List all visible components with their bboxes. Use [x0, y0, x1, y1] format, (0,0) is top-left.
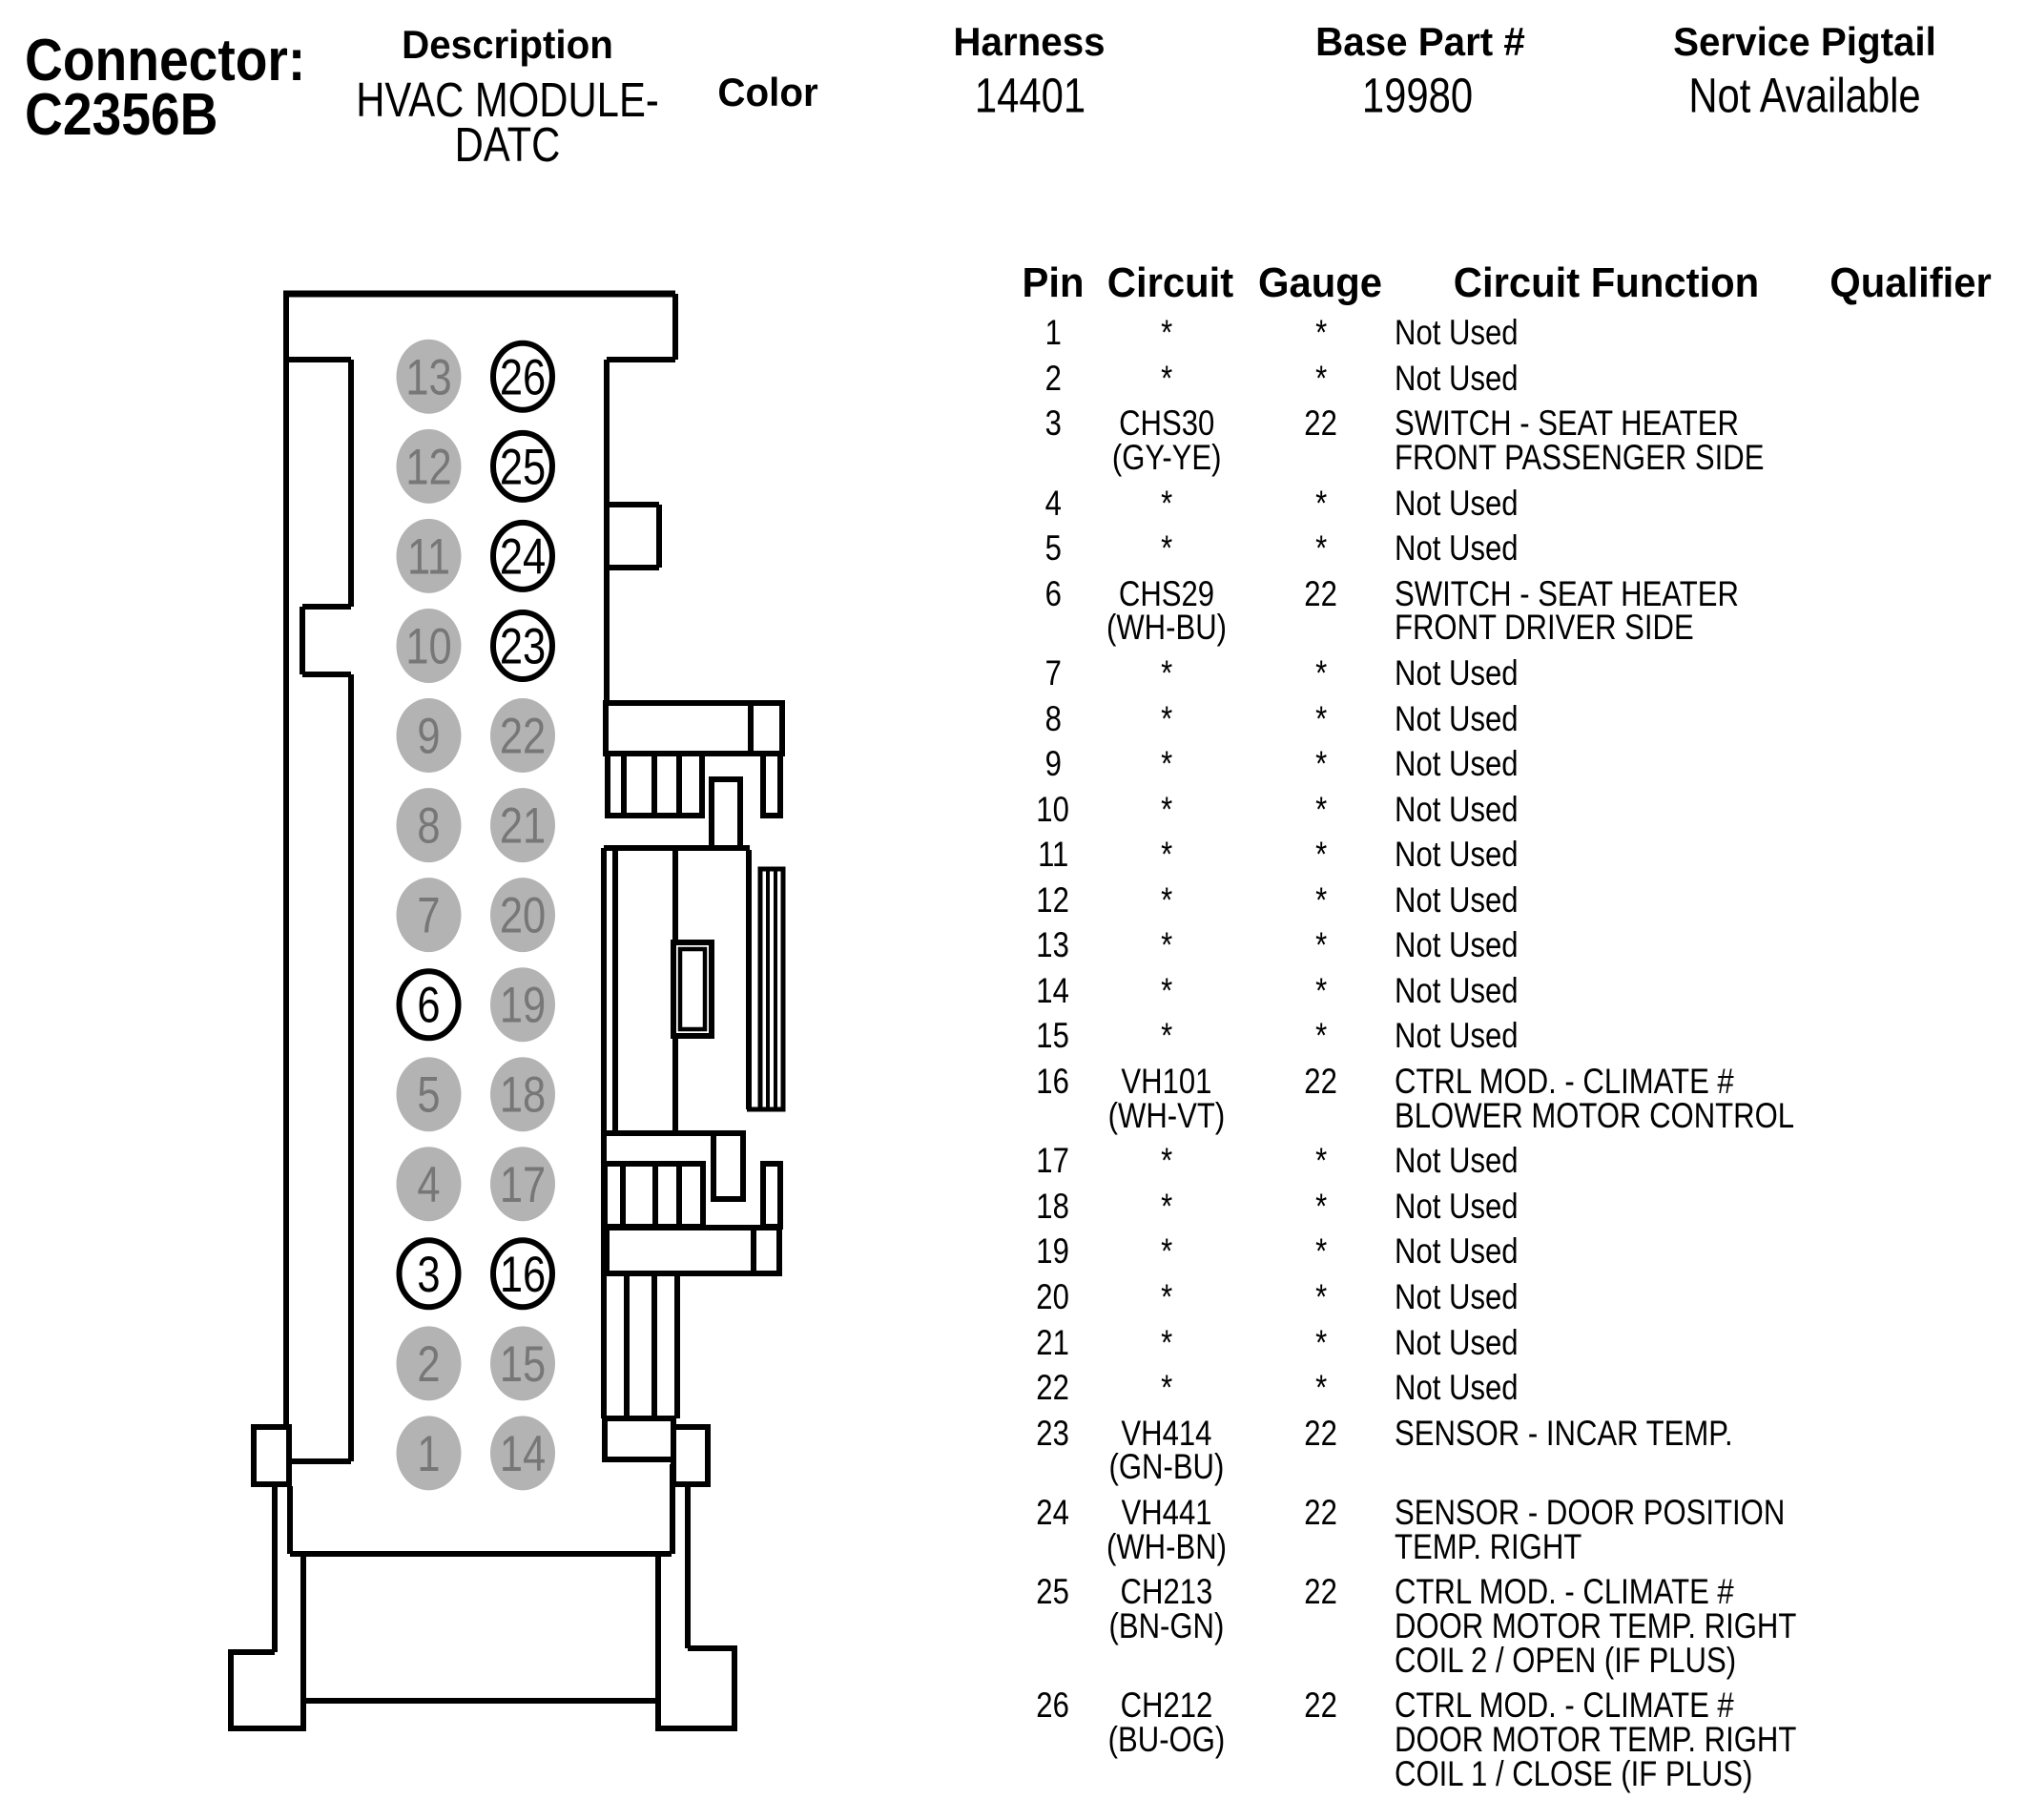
svg-text:26: 26 [500, 349, 546, 405]
svg-text:22: 22 [500, 708, 546, 764]
svg-text:11: 11 [407, 528, 450, 585]
svg-text:14: 14 [500, 1426, 546, 1482]
svg-text:18: 18 [500, 1067, 546, 1124]
svg-text:3: 3 [417, 1247, 440, 1303]
svg-text:10: 10 [405, 618, 451, 674]
svg-text:2: 2 [417, 1336, 440, 1393]
svg-text:6: 6 [417, 978, 440, 1034]
svg-text:17: 17 [500, 1157, 546, 1213]
svg-text:4: 4 [417, 1157, 440, 1213]
svg-text:23: 23 [500, 618, 546, 674]
svg-text:7: 7 [417, 888, 440, 944]
svg-text:15: 15 [500, 1336, 546, 1393]
svg-text:13: 13 [405, 349, 451, 405]
svg-text:5: 5 [417, 1067, 440, 1124]
svg-text:19: 19 [500, 978, 546, 1034]
svg-text:25: 25 [500, 439, 546, 495]
svg-text:8: 8 [417, 798, 440, 855]
svg-text:16: 16 [500, 1247, 546, 1303]
svg-text:1: 1 [417, 1426, 440, 1482]
svg-text:9: 9 [417, 708, 440, 764]
svg-text:20: 20 [500, 888, 546, 944]
svg-text:21: 21 [500, 798, 546, 855]
svg-text:12: 12 [405, 439, 451, 495]
svg-text:24: 24 [500, 528, 546, 585]
